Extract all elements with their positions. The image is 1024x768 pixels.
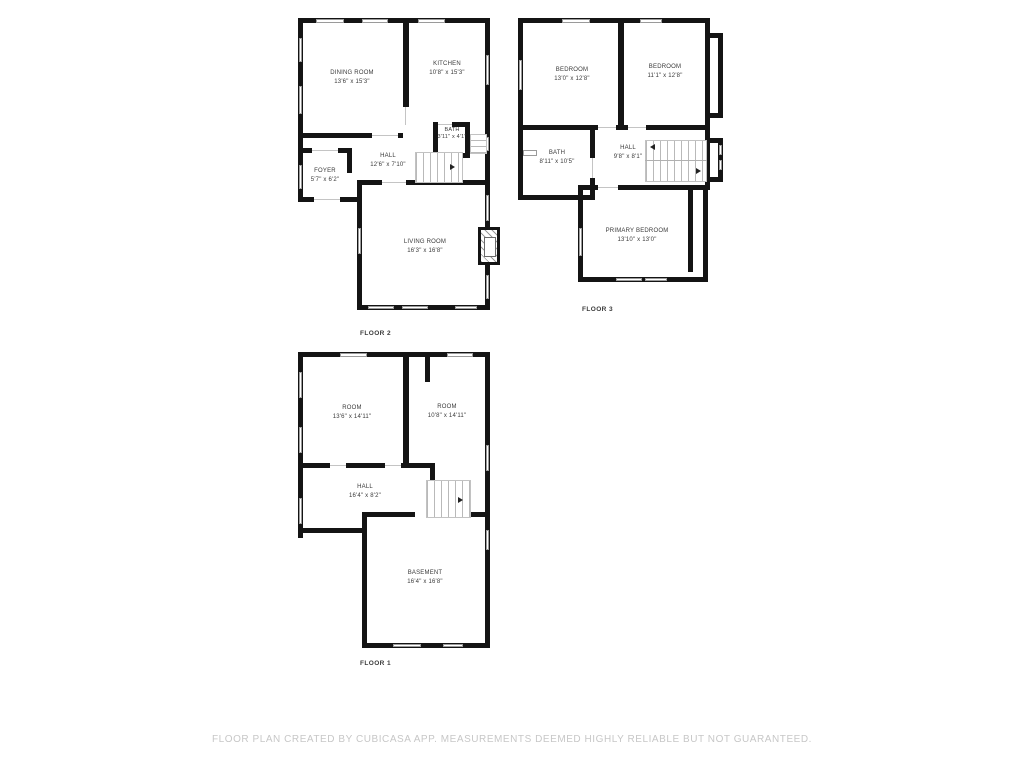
- floorplan-floor-3: BEDROOM 13'0" x 12'8" BEDROOM 11'1" x 12…: [512, 12, 727, 324]
- window: [368, 306, 394, 309]
- stairs: [470, 134, 487, 154]
- window: [299, 427, 302, 453]
- window: [640, 19, 662, 23]
- room-label-basement: BASEMENT 16'4" x 16'8": [407, 569, 443, 587]
- room-name: ROOM: [428, 403, 467, 412]
- room-name: KITCHEN: [429, 60, 465, 69]
- room-label-room: ROOM 10'8" x 14'11": [428, 403, 467, 421]
- wall-segment: [618, 185, 708, 190]
- room-dims: 13'6" x 14'11": [333, 413, 372, 422]
- room-dims: 13'6" x 15'3": [330, 78, 374, 87]
- room-label-bedroom: BEDROOM 13'0" x 12'8": [554, 66, 590, 84]
- room-name: BATH: [437, 127, 466, 134]
- room-label-bedroom: BEDROOM 11'1" x 12'8": [647, 63, 682, 81]
- window: [299, 498, 302, 524]
- door-opening: [385, 465, 401, 466]
- room-name: HALL: [614, 144, 642, 153]
- wall-segment: [403, 18, 409, 107]
- room-dims: 16'3" x 16'8": [404, 247, 446, 256]
- room-dims: 8'11" x 10'5": [539, 158, 574, 167]
- door-opening: [382, 182, 406, 183]
- door-opening: [598, 127, 616, 128]
- stairs-landing-divider: [645, 160, 707, 161]
- room-dims: 11'1" x 12'8": [647, 72, 682, 81]
- wall-segment: [708, 113, 723, 118]
- window: [340, 353, 367, 357]
- room-dims: 9'8" x 8'1": [614, 153, 642, 162]
- room-name: HALL: [349, 483, 381, 492]
- room-name: ROOM: [333, 404, 372, 413]
- stairs: [426, 480, 471, 518]
- floorplan-floor-2: DINING ROOM 13'6" x 15'3" KITCHEN 10'8" …: [290, 12, 505, 344]
- bath-fixture: [523, 150, 537, 156]
- room-name: LIVING ROOM: [404, 238, 446, 247]
- wall-segment: [362, 512, 367, 648]
- window: [719, 145, 722, 155]
- door-opening: [330, 465, 346, 466]
- fireplace-hearth: [484, 237, 496, 257]
- window: [486, 55, 489, 85]
- window: [299, 165, 302, 189]
- wall-segment: [718, 33, 723, 118]
- room-label-hall: HALL 9'8" x 8'1": [614, 144, 642, 162]
- door-opening: [312, 150, 338, 151]
- front-door-opening: [314, 199, 340, 200]
- wall-segment: [618, 18, 624, 125]
- room-dims: 13'0" x 12'8": [554, 75, 590, 84]
- room-dims: 3'11" x 4'1": [437, 134, 466, 141]
- door-opening: [405, 107, 406, 125]
- room-name: FOYER: [311, 167, 339, 176]
- room-dims: 12'6" x 7'10": [370, 161, 406, 170]
- wall-segment: [298, 463, 330, 468]
- floor-label: FLOOR 3: [582, 306, 613, 313]
- room-name: DINING ROOM: [330, 69, 374, 78]
- wall-segment: [518, 18, 523, 200]
- wall-segment: [298, 133, 372, 138]
- wall-segment: [485, 352, 490, 648]
- wall-segment: [590, 130, 595, 158]
- wall-segment: [298, 148, 312, 153]
- window: [562, 19, 590, 23]
- stairs-direction-arrow-icon: [458, 497, 463, 503]
- room-label-hall: HALL 16'4" x 8'2": [349, 483, 381, 501]
- stairs-direction-arrow-icon: [696, 168, 701, 174]
- window: [299, 38, 302, 62]
- wall-segment: [708, 177, 723, 182]
- door-opening: [628, 127, 646, 128]
- window: [486, 445, 489, 471]
- window: [455, 306, 477, 309]
- room-dims: 5'7" x 6'2": [311, 176, 339, 185]
- wall-segment: [403, 352, 409, 468]
- window: [447, 353, 473, 357]
- window: [393, 644, 421, 647]
- door-opening: [592, 158, 593, 178]
- wall-segment: [616, 125, 628, 130]
- wall-segment: [367, 512, 415, 517]
- room-name: BATH: [539, 149, 574, 158]
- wall-segment: [688, 190, 693, 272]
- window: [486, 530, 489, 550]
- wall-segment: [425, 352, 430, 382]
- window: [579, 228, 582, 256]
- floor-label: FLOOR 2: [360, 330, 391, 337]
- door-opening: [438, 124, 452, 125]
- floor-plan-page: { "disclaimer": "FLOOR PLAN CREATED BY C…: [0, 0, 1024, 768]
- window: [402, 306, 428, 309]
- wall-segment: [298, 197, 314, 202]
- room-dims: 13'10" x 13'0": [606, 236, 669, 245]
- fireplace: [478, 227, 500, 265]
- room-dims: 16'4" x 8'2": [349, 492, 381, 501]
- wall-segment: [518, 195, 595, 200]
- window: [486, 195, 489, 221]
- room-label-kitchen: KITCHEN 10'8" x 15'3": [429, 60, 465, 78]
- window: [358, 228, 361, 254]
- wall-segment: [362, 180, 382, 185]
- room-dims: 16'4" x 16'8": [407, 578, 443, 587]
- room-label-bath: BATH 8'11" x 10'5": [539, 149, 574, 167]
- disclaimer-text: FLOOR PLAN CREATED BY CUBICASA APP. MEAS…: [0, 734, 1024, 745]
- wall-segment: [347, 148, 352, 173]
- room-label-room: ROOM 13'6" x 14'11": [333, 404, 372, 422]
- floor-label: FLOOR 1: [360, 660, 391, 667]
- window: [719, 160, 722, 170]
- wall-segment: [346, 463, 385, 468]
- window: [645, 278, 667, 281]
- stairs-direction-arrow-icon: [650, 144, 655, 150]
- room-name: BEDROOM: [554, 66, 590, 75]
- door-opening: [598, 187, 618, 188]
- room-dims: 10'8" x 15'3": [429, 69, 465, 78]
- window: [316, 19, 344, 23]
- wall-segment: [518, 18, 710, 23]
- door-opening: [372, 135, 398, 136]
- window: [299, 86, 302, 114]
- wall-segment: [518, 125, 598, 130]
- room-dims: 10'8" x 14'11": [428, 412, 467, 421]
- room-name: PRIMARY BEDROOM: [606, 227, 669, 236]
- stairs: [415, 152, 463, 183]
- wall-segment: [703, 185, 708, 282]
- floorplan-floor-1: ROOM 13'6" x 14'11" ROOM 10'8" x 14'11" …: [290, 347, 500, 677]
- room-label-bath: BATH 3'11" x 4'1": [437, 127, 466, 141]
- room-name: HALL: [370, 152, 406, 161]
- window: [299, 372, 302, 398]
- wall-segment: [398, 133, 403, 138]
- window: [443, 644, 463, 647]
- room-label-dining-room: DINING ROOM 13'6" x 15'3": [330, 69, 374, 87]
- room-label-living-room: LIVING ROOM 16'3" x 16'8": [404, 238, 446, 256]
- room-name: BASEMENT: [407, 569, 443, 578]
- room-label-primary-bedroom: PRIMARY BEDROOM 13'10" x 13'0": [606, 227, 669, 245]
- room-label-foyer: FOYER 5'7" x 6'2": [311, 167, 339, 185]
- window: [486, 275, 489, 299]
- window: [519, 60, 522, 90]
- wall-segment: [578, 277, 708, 282]
- wall-segment: [646, 125, 710, 130]
- wall-segment: [362, 643, 490, 648]
- window: [616, 278, 642, 281]
- window: [418, 19, 445, 23]
- stairs-direction-arrow-icon: [450, 164, 455, 170]
- room-label-hall: HALL 12'6" x 7'10": [370, 152, 406, 170]
- room-name: BEDROOM: [647, 63, 682, 72]
- window: [362, 19, 388, 23]
- wall-segment: [298, 528, 367, 533]
